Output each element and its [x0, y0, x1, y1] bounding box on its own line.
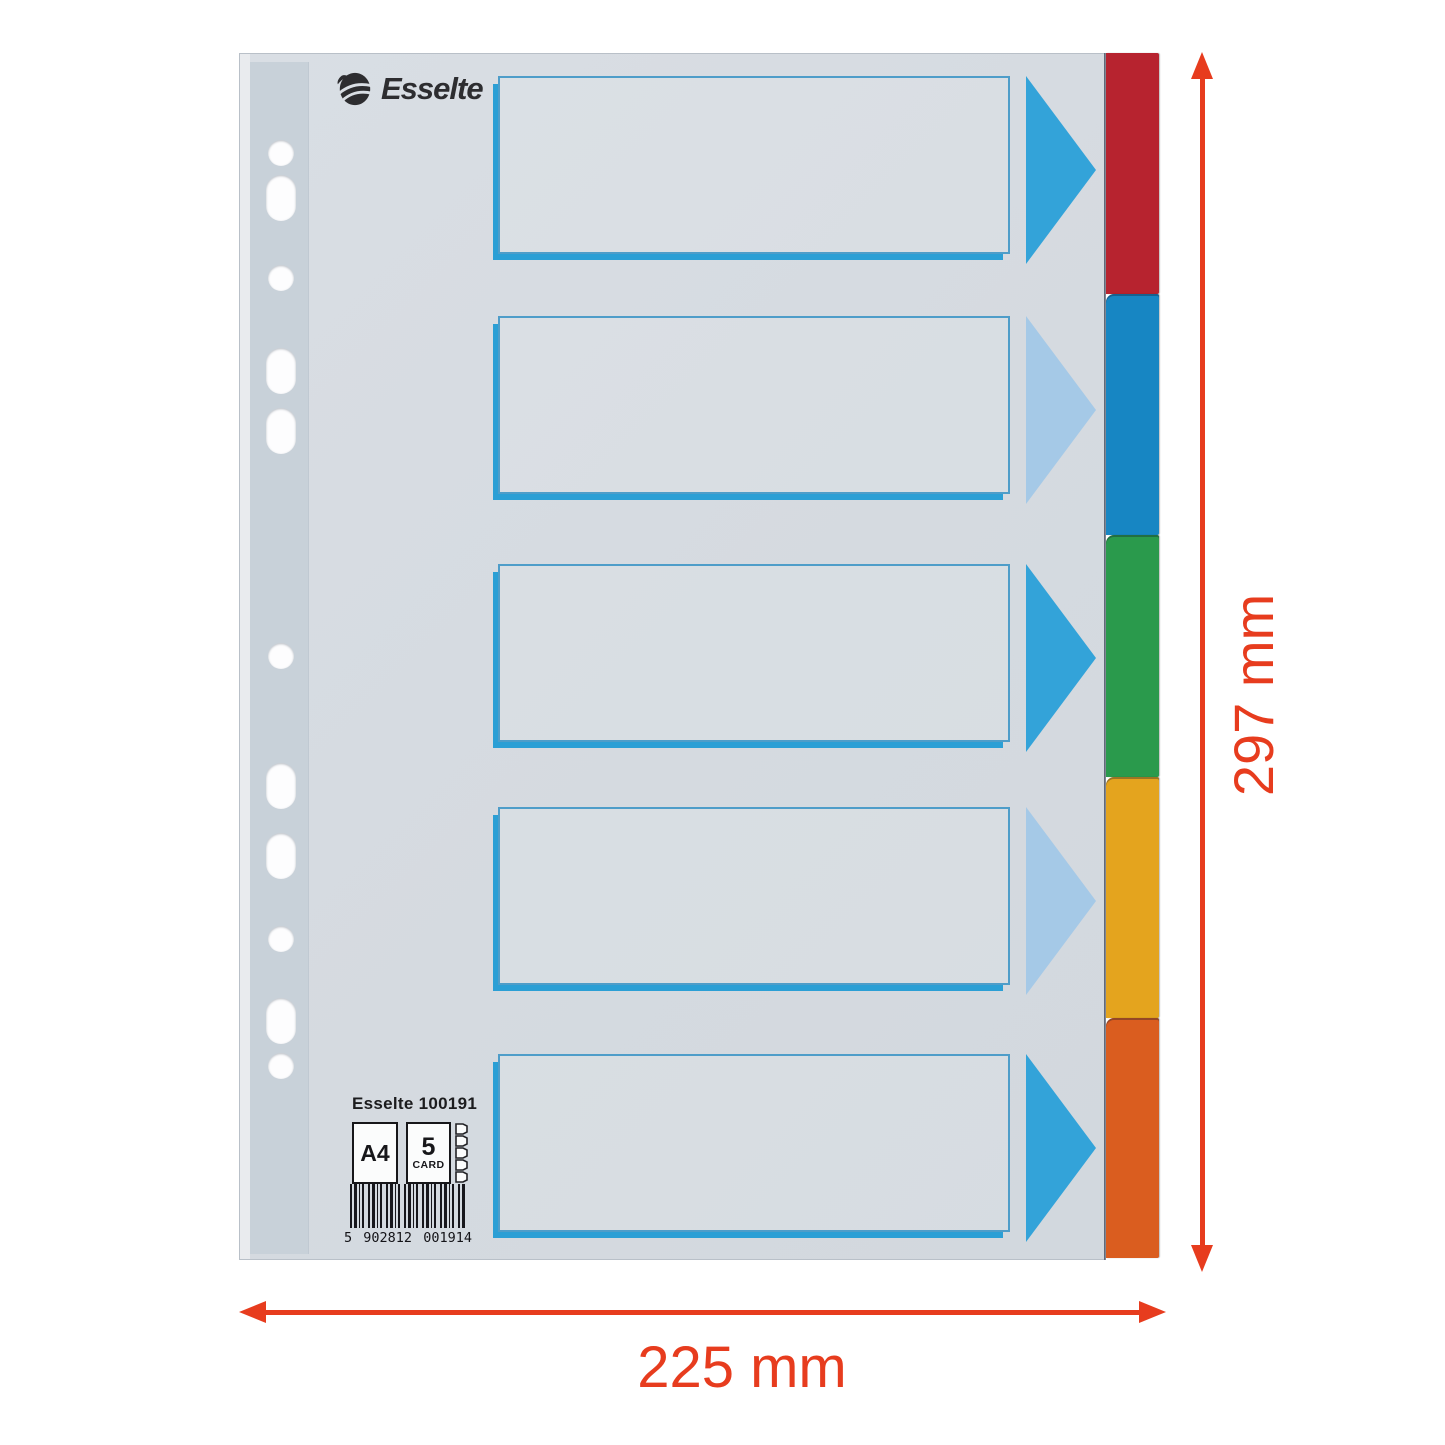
punch-hole: [266, 763, 296, 809]
sku-text: Esselte 100191: [352, 1094, 477, 1114]
tab-green: [1106, 535, 1159, 777]
label-arrow-icon-4: [1026, 807, 1096, 995]
barcode-digits: 5 902812 001914: [344, 1230, 472, 1246]
label-arrow-icon-2: [1026, 316, 1096, 504]
tab-red: [1106, 53, 1159, 294]
barcode: [350, 1184, 466, 1228]
punch-hole: [266, 998, 296, 1044]
tab-blue: [1106, 294, 1159, 535]
label-box-5: [498, 1054, 1010, 1232]
product-photo: Esselte Esselte 100191 A4 5 CARD: [0, 0, 1445, 1445]
punch-hole: [268, 1053, 294, 1079]
barcode-prefix: 5: [344, 1230, 352, 1246]
punch-hole: [266, 833, 296, 879]
width-arrow-line: [262, 1310, 1143, 1315]
sheet-left-edge: [240, 54, 250, 1259]
punch-hole: [268, 926, 294, 952]
punch-hole: [268, 643, 294, 669]
esselte-globe-icon: [336, 70, 374, 108]
label-box-2: [498, 316, 1010, 494]
brand-logo-text: Esselte: [381, 71, 483, 107]
label-arrow-icon-1: [1026, 76, 1096, 264]
label-box-3: [498, 564, 1010, 742]
barcode-group2: 001914: [423, 1230, 472, 1246]
tab-stack-icon: [454, 1122, 469, 1184]
tab-yellow: [1106, 777, 1159, 1018]
height-dimension-label: 297 mm: [1218, 570, 1288, 820]
label-arrow-icon-5: [1026, 1054, 1096, 1242]
punch-hole: [268, 140, 294, 166]
format-badge-label: A4: [360, 1140, 389, 1167]
tab-orange: [1106, 1018, 1159, 1258]
brand-logo: Esselte: [336, 70, 483, 108]
width-dimension-label: 225 mm: [542, 1334, 942, 1401]
divider-sheet: Esselte Esselte 100191 A4 5 CARD: [239, 53, 1105, 1260]
count-badge-number: 5: [422, 1135, 436, 1159]
count-badge-unit: CARD: [413, 1159, 445, 1171]
punch-hole: [266, 348, 296, 394]
punch-hole: [266, 408, 296, 454]
height-arrow-line: [1200, 74, 1205, 1246]
count-badge: 5 CARD: [406, 1122, 451, 1184]
label-arrow-icon-3: [1026, 564, 1096, 752]
format-badge: A4: [352, 1122, 398, 1184]
width-arrowhead-right-icon: [1139, 1301, 1166, 1323]
barcode-group1: 902812: [363, 1230, 412, 1246]
label-box-1: [498, 76, 1010, 254]
tab-column: [1104, 53, 1159, 1260]
punch-hole: [266, 175, 296, 221]
punch-hole: [268, 265, 294, 291]
label-box-4: [498, 807, 1010, 985]
height-arrowhead-down-icon: [1191, 1245, 1213, 1272]
